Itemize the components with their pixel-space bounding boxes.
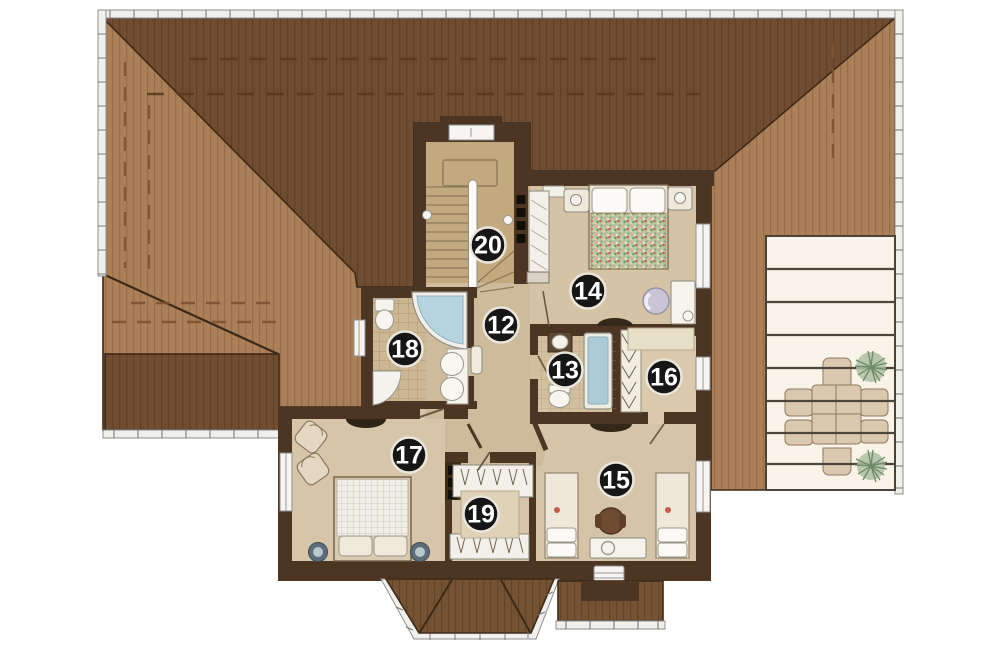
- svg-text:17: 17: [395, 442, 423, 470]
- svg-text:20: 20: [474, 232, 502, 260]
- svg-text:19: 19: [467, 501, 495, 529]
- svg-text:13: 13: [551, 357, 579, 385]
- svg-text:18: 18: [391, 336, 419, 364]
- svg-text:12: 12: [487, 312, 515, 340]
- svg-text:16: 16: [650, 364, 678, 392]
- svg-text:15: 15: [602, 467, 630, 495]
- svg-text:14: 14: [574, 278, 602, 306]
